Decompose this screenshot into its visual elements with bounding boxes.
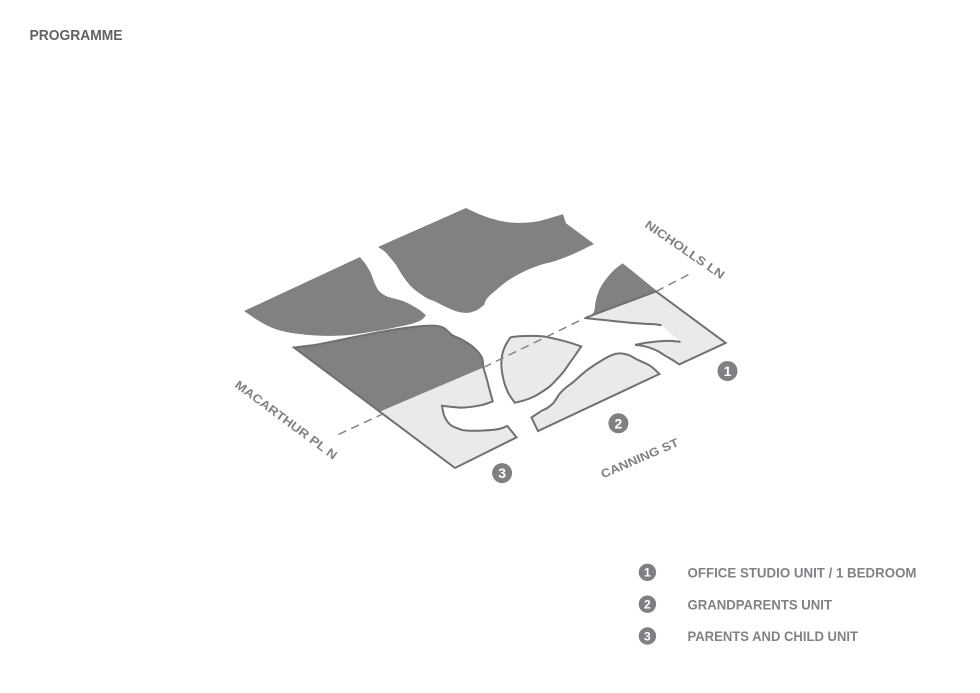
svg-text:PARENTS AND CHILD UNIT: PARENTS AND CHILD UNIT: [688, 628, 859, 644]
svg-text:1: 1: [644, 566, 651, 580]
svg-text:3: 3: [644, 629, 651, 643]
svg-text:2: 2: [644, 598, 651, 612]
svg-text:CANNING ST: CANNING ST: [599, 435, 682, 481]
svg-text:PROGRAMME: PROGRAMME: [30, 28, 123, 44]
svg-text:GRANDPARENTS UNIT: GRANDPARENTS UNIT: [688, 596, 833, 612]
svg-text:MACARTHUR PL N: MACARTHUR PL N: [232, 378, 340, 463]
svg-text:NICHOLLS LN: NICHOLLS LN: [642, 217, 727, 281]
svg-text:3: 3: [498, 465, 506, 481]
svg-text:1: 1: [724, 363, 732, 379]
svg-text:2: 2: [615, 415, 623, 431]
svg-text:OFFICE STUDIO UNIT / 1 BEDROOM: OFFICE STUDIO UNIT / 1 BEDROOM: [688, 564, 917, 580]
